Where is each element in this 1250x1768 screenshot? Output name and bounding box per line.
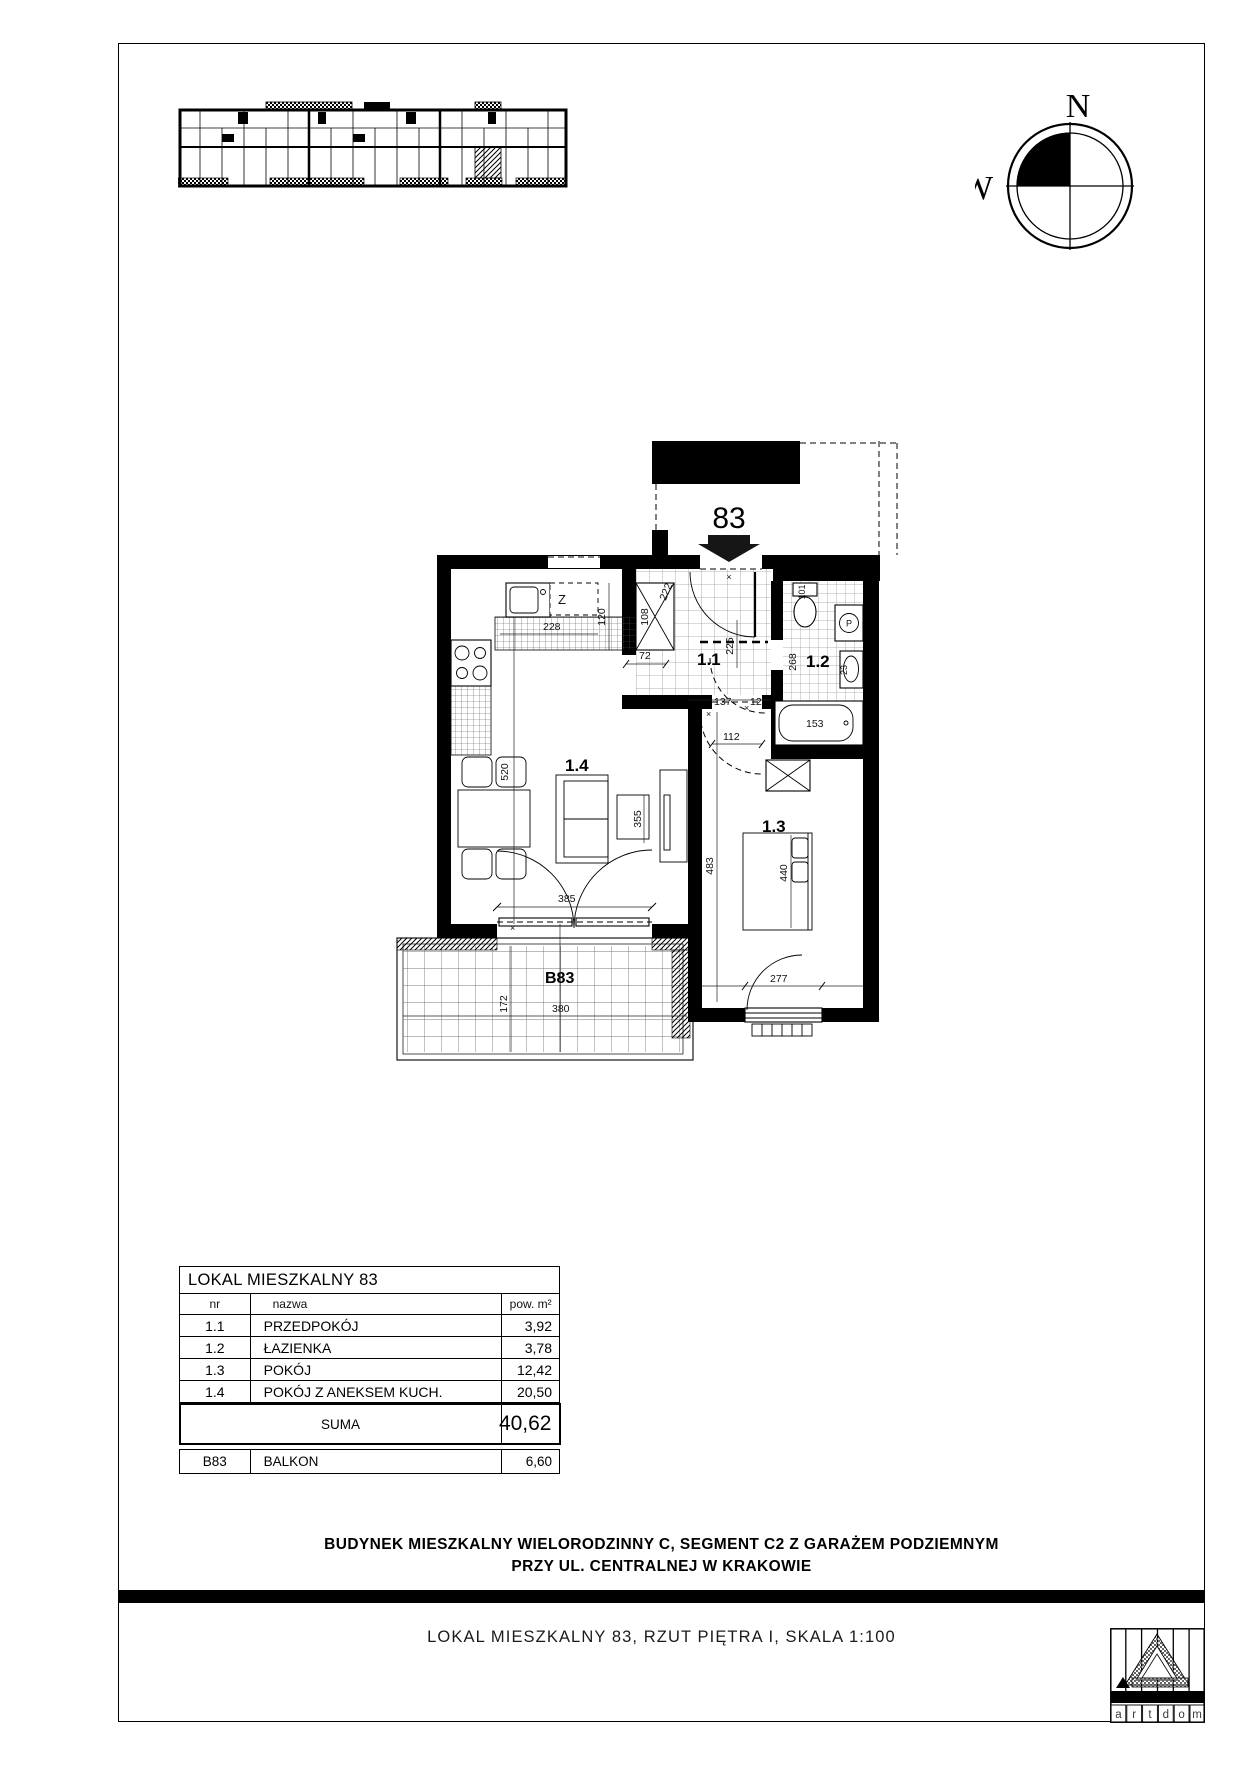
cell-nr: 1.2 — [180, 1337, 251, 1358]
building-title-line2: PRZY UL. CENTRALNEJ W KRAKOWIE — [118, 1558, 1205, 1576]
room-label-1-3: 1.3 — [762, 817, 786, 836]
svg-text:483: 483 — [704, 857, 716, 875]
room-label-1-2: 1.2 — [806, 652, 830, 671]
svg-text:268: 268 — [787, 653, 799, 671]
table-row: 1.1 PRZEDPOKÓJ 3,92 — [179, 1315, 560, 1337]
balcony-label: B83 — [545, 970, 574, 987]
door-marker: × — [706, 709, 711, 719]
cell-nazwa: POKÓJ Z ANEKSEM KUCH. — [251, 1381, 503, 1402]
entrance-marker: × — [726, 572, 731, 582]
toilet — [794, 597, 816, 627]
svg-text:380: 380 — [552, 1003, 570, 1015]
floor-plan-sheet: N W — [0, 0, 1250, 1768]
cell-pow: 20,50 — [502, 1381, 559, 1402]
building-overview — [178, 90, 570, 190]
sheet-title: LOKAL MIESZKALNY 83, RZUT PIĘTRA I, SKAL… — [118, 1628, 1205, 1647]
logo-letter: m — [1192, 1709, 1202, 1721]
svg-text:277: 277 — [770, 973, 788, 985]
compass-west-label: W — [975, 170, 994, 207]
cell-pow: 3,92 — [502, 1315, 559, 1336]
area-table: LOKAL MIESZKALNY 83 nr nazwa pow. m² 1.1… — [179, 1266, 560, 1474]
balcony-floor — [403, 946, 683, 1052]
door-marker: × — [510, 923, 515, 933]
company-logo: a r t d o m — [1110, 1628, 1205, 1723]
svg-text:172: 172 — [498, 995, 510, 1013]
svg-text:440: 440 — [778, 864, 790, 882]
pillow — [792, 862, 808, 882]
table-header-row: nr nazwa pow. m² — [179, 1294, 560, 1315]
cell-nazwa: ŁAZIENKA — [251, 1337, 503, 1358]
entrance-arrow-icon — [698, 535, 760, 562]
svg-text:112: 112 — [723, 731, 740, 743]
logo-letter: o — [1178, 1709, 1184, 1721]
svg-text:101: 101 — [797, 584, 807, 599]
col-header-pow: pow. m² — [502, 1294, 559, 1314]
table-title-text: LOKAL MIESZKALNY 83 — [188, 1271, 378, 1290]
cell-pow: 3,78 — [502, 1337, 559, 1358]
svg-text:137: 137 — [714, 696, 732, 708]
svg-text:72: 72 — [639, 650, 651, 662]
col-header-nazwa: nazwa — [251, 1294, 503, 1314]
table-title: LOKAL MIESZKALNY 83 — [179, 1266, 560, 1294]
room-label-1-4: 1.4 — [565, 756, 589, 775]
overview-highlighted-unit — [475, 147, 501, 178]
svg-text:520: 520 — [499, 763, 511, 781]
cell-nr: 1.1 — [180, 1315, 251, 1336]
svg-text:228: 228 — [543, 621, 561, 633]
chair — [496, 849, 526, 879]
washer-label: P — [846, 619, 852, 629]
cell-pow: 6,60 — [502, 1450, 559, 1473]
suma-value: 40,62 — [502, 1405, 559, 1443]
stove — [451, 640, 491, 686]
tv — [664, 795, 670, 850]
pillow — [792, 838, 808, 858]
table-row: 1.2 ŁAZIENKA 3,78 — [179, 1337, 560, 1359]
compass-north-label: N — [1066, 88, 1091, 125]
svg-text:153: 153 — [806, 718, 824, 730]
divider-bar — [119, 1590, 1204, 1603]
building-title-line1: BUDYNEK MIESZKALNY WIELORODZINNY C, SEGM… — [118, 1536, 1205, 1554]
room-label-1-1: 1.1 — [697, 650, 721, 669]
suma-label: SUMA — [181, 1405, 502, 1443]
cell-nr: B83 — [180, 1450, 251, 1473]
cell-nazwa: BALKON — [251, 1450, 503, 1473]
cell-nazwa: POKÓJ — [251, 1359, 503, 1380]
door-marker: × — [744, 703, 749, 713]
svg-text:120: 120 — [596, 608, 608, 626]
col-header-nr: nr — [180, 1294, 251, 1314]
chair — [462, 757, 492, 787]
cell-nr: 1.4 — [180, 1381, 251, 1402]
table-balkon-row: B83 BALKON 6,60 — [179, 1449, 560, 1474]
svg-text:12: 12 — [750, 696, 762, 708]
compass-rose: N W — [975, 78, 1155, 258]
kitchen-counter — [495, 617, 645, 650]
table-row: 1.4 POKÓJ Z ANEKSEM KUCH. 20,50 — [179, 1381, 560, 1403]
dining-table — [458, 790, 530, 847]
window — [745, 1008, 822, 1022]
logo-letter: d — [1163, 1709, 1169, 1721]
svg-text:355: 355 — [632, 810, 644, 828]
kitchen-sink — [506, 583, 550, 617]
cell-pow: 12,42 — [502, 1359, 559, 1380]
cell-nazwa: PRZEDPOKÓJ — [251, 1315, 503, 1336]
logo-letter: r — [1132, 1709, 1136, 1721]
logo-band — [1111, 1691, 1204, 1703]
svg-text:385: 385 — [558, 893, 576, 905]
unit-number-label: 83 — [712, 502, 745, 535]
svg-text:23: 23 — [839, 665, 849, 675]
svg-text:108: 108 — [639, 608, 651, 626]
table-row: 1.3 POKÓJ 12,42 — [179, 1359, 560, 1381]
cell-nr: 1.3 — [180, 1359, 251, 1380]
table-suma-row: SUMA 40,62 — [179, 1403, 561, 1445]
chair — [462, 849, 492, 879]
floor-plan: 83 × × × Z — [380, 430, 900, 1075]
logo-ruler — [1132, 1678, 1188, 1687]
svg-text:225: 225 — [724, 637, 736, 655]
logo-letter: a — [1115, 1709, 1122, 1721]
compass-nw-quadrant — [1017, 133, 1070, 186]
closet-label: Z — [558, 592, 566, 607]
